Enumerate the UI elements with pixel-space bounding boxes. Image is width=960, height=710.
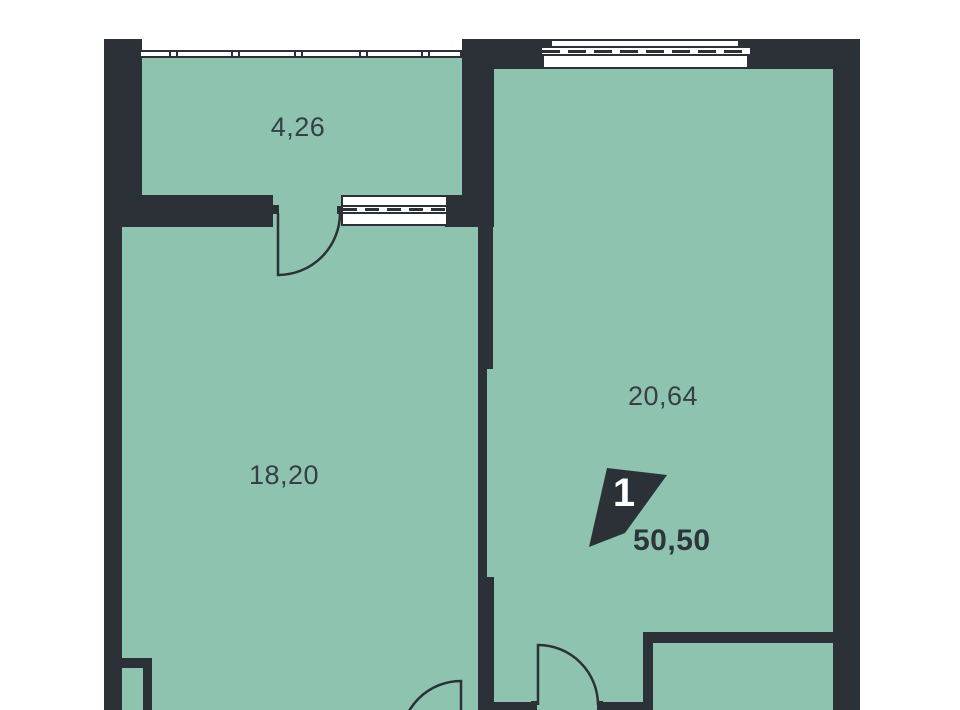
window-pane: [343, 212, 446, 224]
wall-middle-thin: [478, 369, 487, 577]
window-mullion: [359, 52, 368, 56]
wall-middle-lower: [478, 577, 494, 710]
floor-plan: 4,26 18,20 20,64 1 50,50: [0, 0, 960, 710]
wall-bottom-right-of-door: [597, 702, 653, 710]
wall-bottom-left-of-door: [478, 702, 537, 710]
wall-balcony-separator: [104, 195, 273, 227]
window-mullion: [169, 52, 178, 56]
wall-right: [833, 39, 860, 710]
wall-middle-upper: [478, 227, 493, 369]
window-balcony-inner: [341, 195, 448, 226]
jamb-bottom-door-right: [597, 701, 603, 710]
wall-left: [104, 227, 122, 710]
wall-bathroom-vertical: [643, 632, 653, 710]
window-balcony-top: [139, 50, 462, 58]
wall-bathroom-horizontal: [643, 632, 833, 643]
room-label-living: 18,20: [249, 460, 319, 491]
window-main-outer: [550, 39, 740, 48]
room-label-balcony: 4,26: [271, 112, 326, 143]
badge-total-area: 50,50: [633, 524, 711, 558]
jamb-bottom-door-left: [531, 701, 537, 710]
wall-alcove-horizontal: [122, 658, 152, 668]
window-mullion: [421, 52, 430, 56]
window-pane: [343, 197, 446, 207]
wall-alcove-vertical: [143, 668, 152, 710]
window-mullion: [231, 52, 240, 56]
jamb-balcony-door-left: [273, 205, 279, 214]
room-label-main: 20,64: [628, 381, 698, 412]
window-mullion: [294, 52, 303, 56]
window-main-inner: [542, 54, 749, 69]
badge-room-count: 1: [605, 474, 643, 512]
